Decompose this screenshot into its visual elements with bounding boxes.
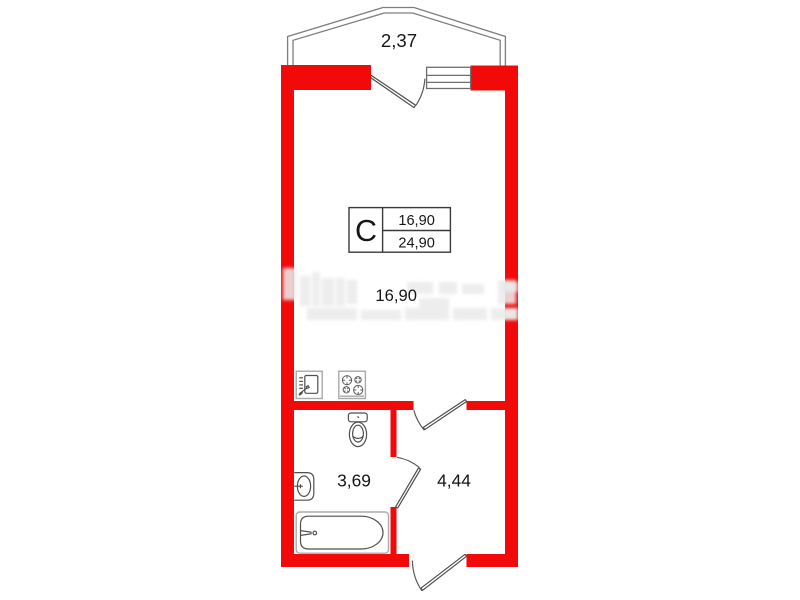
svg-text:16,90: 16,90 bbox=[375, 286, 417, 305]
svg-text:24,90: 24,90 bbox=[398, 236, 435, 252]
svg-text:3,69: 3,69 bbox=[337, 471, 371, 491]
svg-text:4,44: 4,44 bbox=[437, 471, 471, 491]
svg-text:16,90: 16,90 bbox=[398, 213, 435, 229]
svg-text:2,37: 2,37 bbox=[381, 30, 417, 51]
svg-text:С: С bbox=[355, 214, 377, 248]
